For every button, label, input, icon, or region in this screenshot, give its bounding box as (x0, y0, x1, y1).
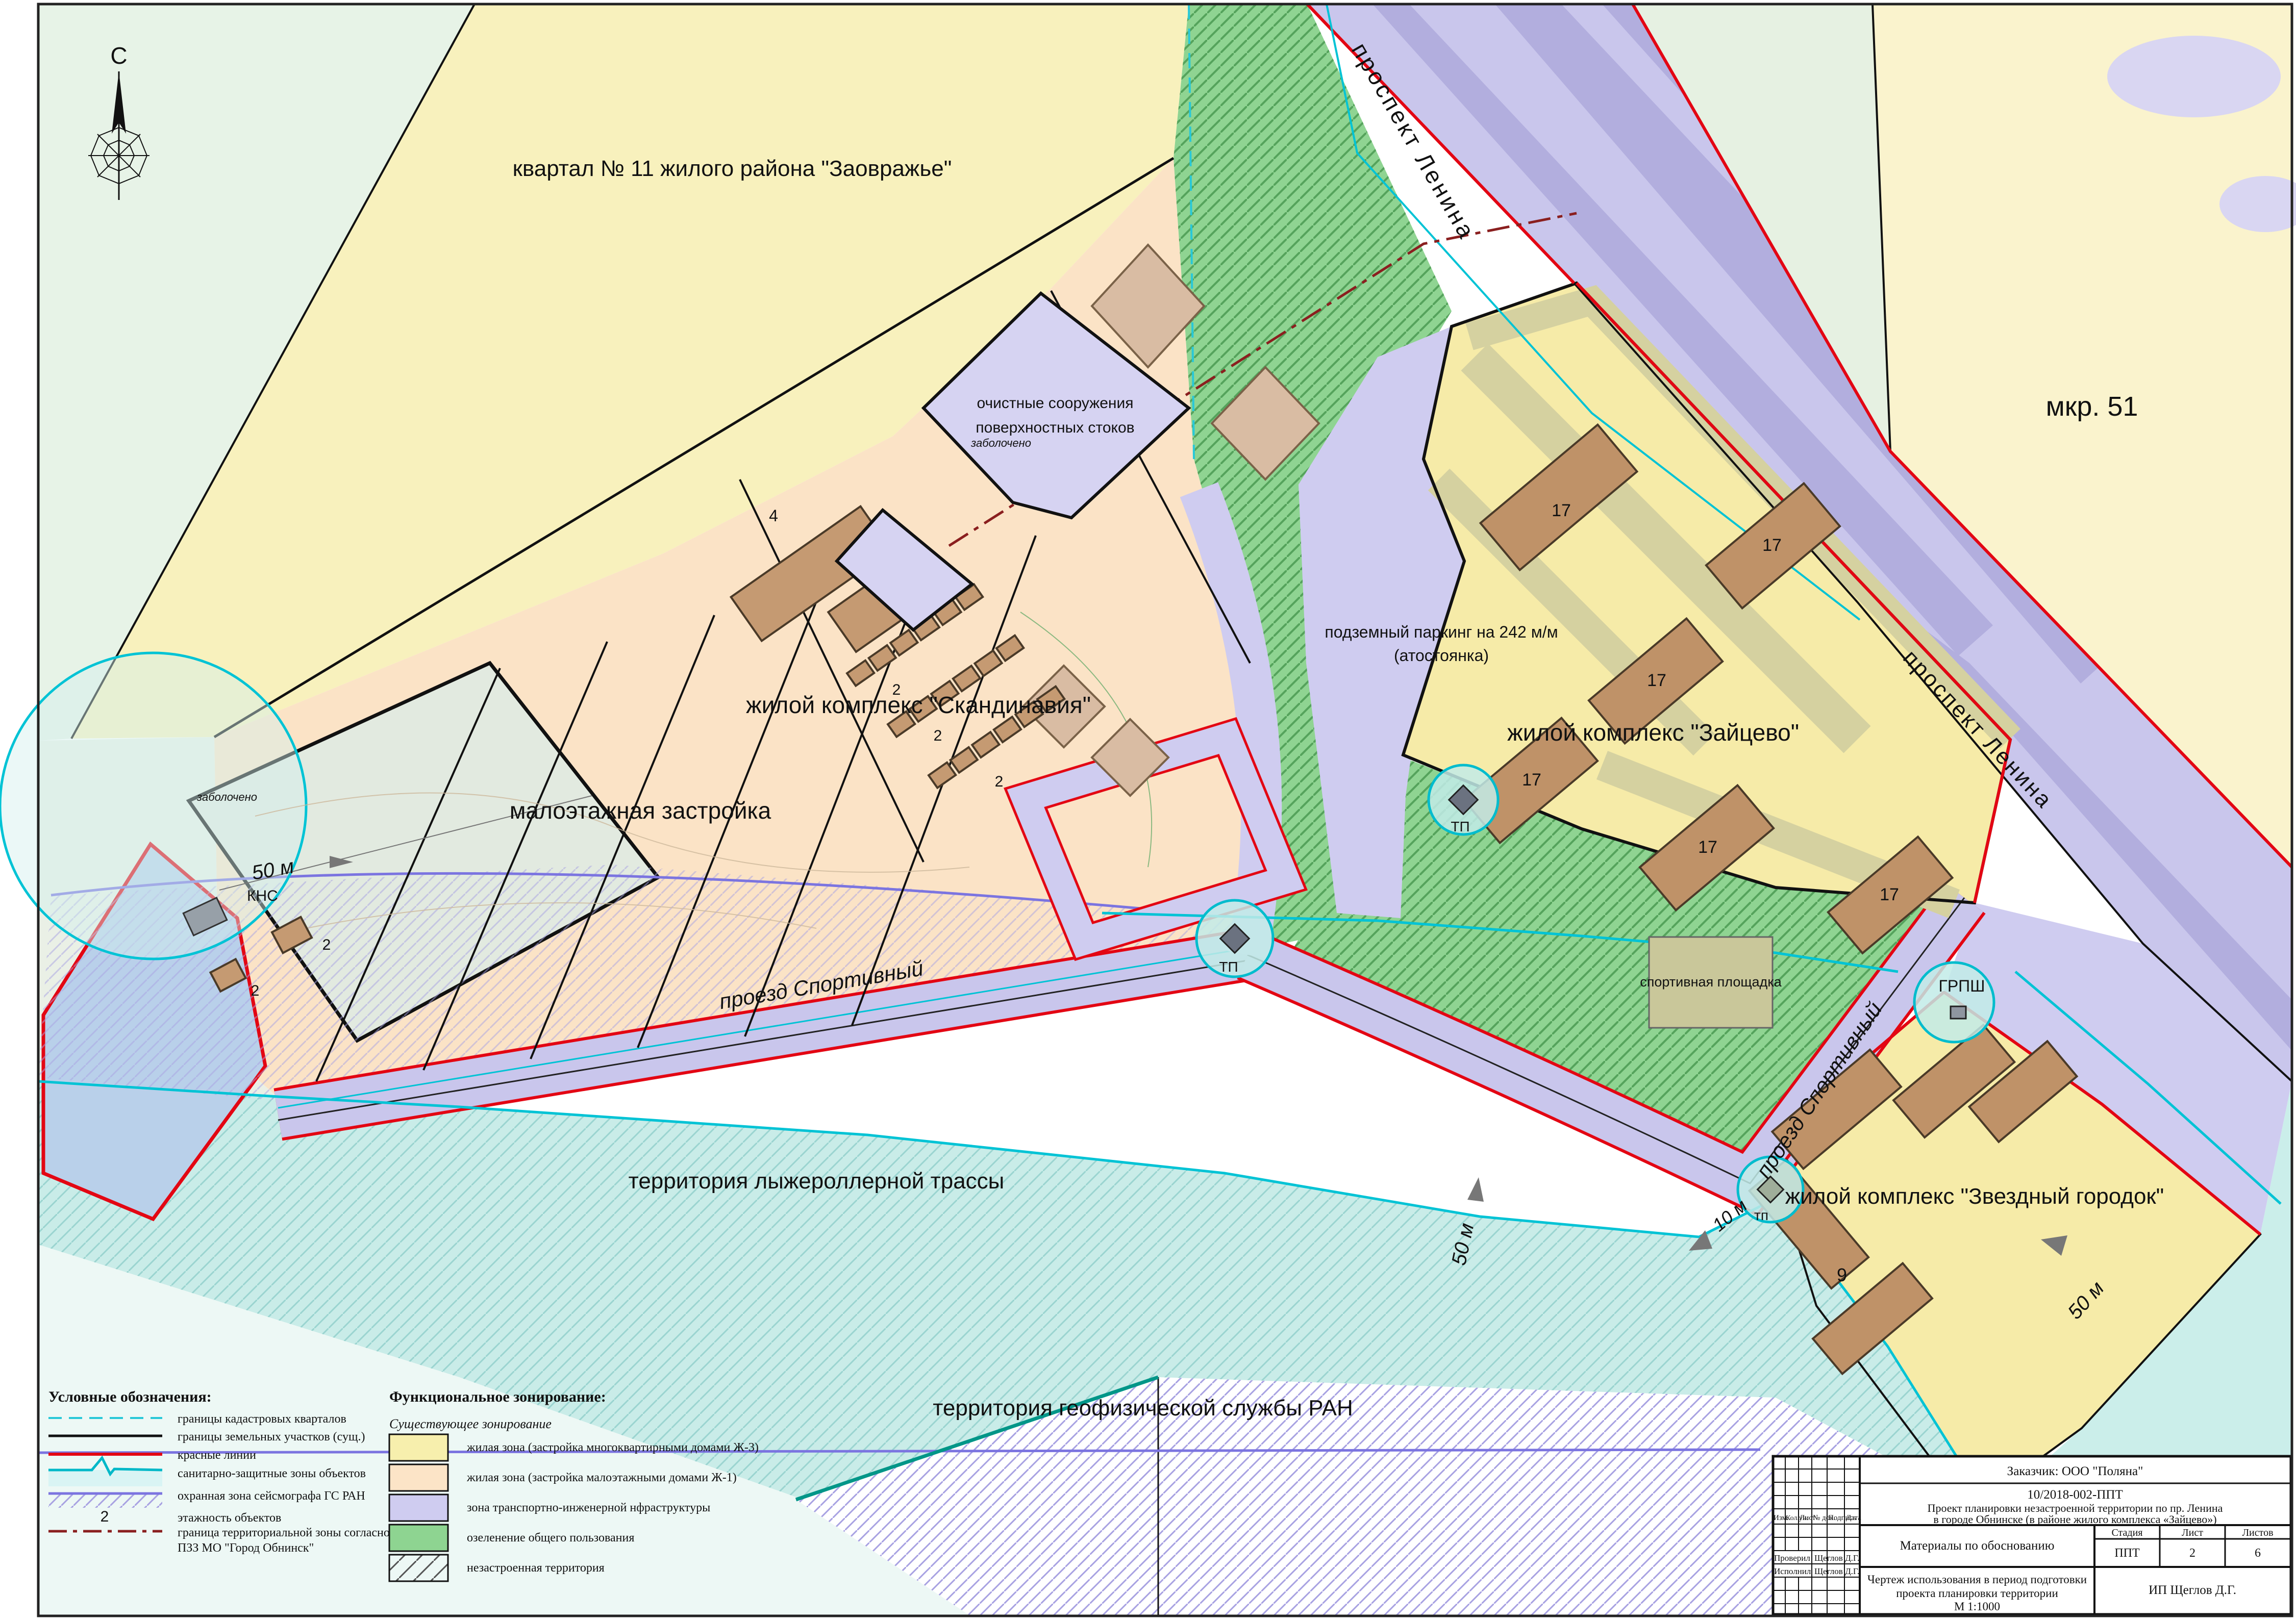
zoning-item-label: незастроенная территория (467, 1561, 605, 1575)
legend-item-label: граница территориальной зоны согласно (178, 1526, 390, 1539)
label-parking-1: подземный паркинг на 242 м/м (1325, 623, 1558, 641)
zoning-item-label: жилая зона (застройка малоэтажными домам… (466, 1471, 737, 1484)
label-zabolocheno: заболочено (970, 437, 1031, 449)
label-floors: 17 (1698, 838, 1717, 857)
label-floors: 9 (1837, 1264, 1847, 1285)
label-kvartal11: квартал № 11 жилого района "Заовражье" (513, 156, 952, 181)
tb-sheet-label: Лист (2182, 1527, 2203, 1538)
legend-title: Условные обозначения: (48, 1388, 212, 1405)
label-ski-track: территория лыжероллерной трассы (629, 1169, 1005, 1194)
tb-drawing-title1: Чертеж использования в период подготовки (1867, 1573, 2087, 1586)
sanitary-circle-kns (0, 653, 306, 959)
label-ran: территория геофизической службы РАН (933, 1396, 1353, 1421)
label-maloetazhnaya: малоэтажная застройка (510, 797, 771, 824)
tb-drawing-scale: М 1:1000 (1954, 1600, 2000, 1613)
label-kns: КНС (247, 888, 278, 904)
label-tp-small: тп (1754, 1207, 1768, 1223)
label-tp: ТП (1451, 819, 1469, 834)
legend-item-label2: ПЗЗ МО "Город Обнинск" (178, 1541, 314, 1555)
label-ochistnye-2: поверхностных стоков (976, 419, 1134, 436)
zoning-item-label: зона транспортно-инженерной нфраструктур… (467, 1501, 710, 1514)
legend-symbol-floors: 2 (101, 1508, 109, 1525)
zones (38, 4, 2296, 1617)
legend-item-label: границы земельных участков (сущ.) (178, 1430, 365, 1443)
plan-sheet: квартал № 11 жилого района "Заовражье" м… (0, 0, 2296, 1621)
tb-checked-name: Щеглов Д.Г. (1814, 1553, 1859, 1563)
titleblock: Изм. Кол.уч. Лист № док. Подпись Дата Пр… (1773, 1456, 2291, 1614)
zoning-item-label: жилая зона (застройка многоквартирными д… (466, 1441, 759, 1454)
zoning-swatch-zh1 (389, 1464, 448, 1491)
label-ochistnye-1: очистные сооружения (977, 395, 1133, 412)
label-grpsh: ГРПШ (1939, 977, 1985, 995)
tb-stage-label: Стадия (2111, 1527, 2142, 1538)
compass-rose-rays (88, 125, 149, 186)
legend-item-label: санитарно-защитные зоны объектов (178, 1467, 366, 1480)
label-mkr51: мкр. 51 (2046, 391, 2138, 422)
label-floors: 2 (892, 681, 901, 698)
label-zabolocheno: заболочено (196, 791, 257, 803)
grpsh-symbol (1951, 1006, 1966, 1019)
legend-symbol-seismo-hatch (48, 1493, 162, 1508)
label-skandinavia: жилой комплекс "Скандинавия" (746, 692, 1091, 718)
zoning-swatch-undeveloped (389, 1555, 448, 1581)
site-plan-map: квартал № 11 жилого района "Заовражье" м… (0, 0, 2296, 1621)
tb-sheets-value: 6 (2255, 1547, 2261, 1560)
label-floors: 2 (322, 936, 331, 953)
tb-sheets-label: Листов (2242, 1527, 2273, 1538)
tb-code: 10/2018-002-ППТ (2027, 1488, 2123, 1502)
legend-symbol-sanitary-fill (48, 1470, 162, 1486)
tb-author-name: Щеглов Д.Г. (1814, 1566, 1859, 1576)
tb-col-data: Дата (1846, 1514, 1861, 1522)
tb-stage-value: ППТ (2114, 1547, 2140, 1560)
label-parking-2: (атостоянка) (1394, 646, 1489, 665)
label-tp: ТП (1219, 959, 1238, 975)
label-floors: 17 (1880, 885, 1899, 904)
zoning-item-label: озеленение общего пользования (467, 1531, 634, 1544)
tb-sheet-value: 2 (2189, 1547, 2195, 1560)
label-floors: 17 (1762, 536, 1782, 555)
label-floors: 17 (1522, 770, 1541, 790)
legend-item-label: красные линии (178, 1449, 256, 1462)
label-floors: 17 (1647, 671, 1666, 690)
label-zaytsevo: жилой комплекс "Зайцево" (1507, 719, 1799, 746)
zoning-title: Функциональное зонирование: (389, 1388, 606, 1405)
mkr51-pond (2107, 36, 2281, 117)
legend-item-label: границы кадастровых кварталов (178, 1412, 346, 1426)
zoning-subtitle: Существующее зонирование (389, 1416, 552, 1431)
zoning-swatch-zh3 (389, 1434, 448, 1461)
tb-checked-label: Проверил (1774, 1553, 1810, 1563)
zoning-swatch-transport (389, 1495, 448, 1521)
tb-drawing-title2: проекта планировки территории (1896, 1587, 2058, 1600)
tb-materials: Материалы по обоснованию (1900, 1539, 2055, 1553)
tb-project-line2: в городе Обнинске (в районе жилого компл… (1933, 1513, 2216, 1526)
compass-north-label: С (110, 42, 127, 69)
label-floors: 2 (934, 727, 942, 744)
label-floors: 2 (995, 773, 1004, 790)
tb-author-label: Исполнил (1774, 1566, 1811, 1576)
label-sport-ground: спортивная площадка (1640, 974, 1782, 990)
zoning-swatch-green (389, 1525, 448, 1551)
label-floors: 4 (769, 506, 778, 525)
label-zvezdny: жилой комплекс "Звездный городок" (1785, 1184, 2164, 1209)
label-floors: 2 (251, 982, 260, 999)
label-floors: 17 (1552, 501, 1571, 520)
tb-org: ИП Щеглов Д.Г. (2149, 1583, 2236, 1597)
legend-item-label: этажность объектов (178, 1511, 281, 1525)
tb-customer: Заказчик: ООО "Поляна" (2007, 1464, 2143, 1478)
legend-item-label: охранная зона сейсмографа ГС РАН (178, 1489, 365, 1503)
grpsh-sanitary-blob (1914, 963, 1994, 1042)
